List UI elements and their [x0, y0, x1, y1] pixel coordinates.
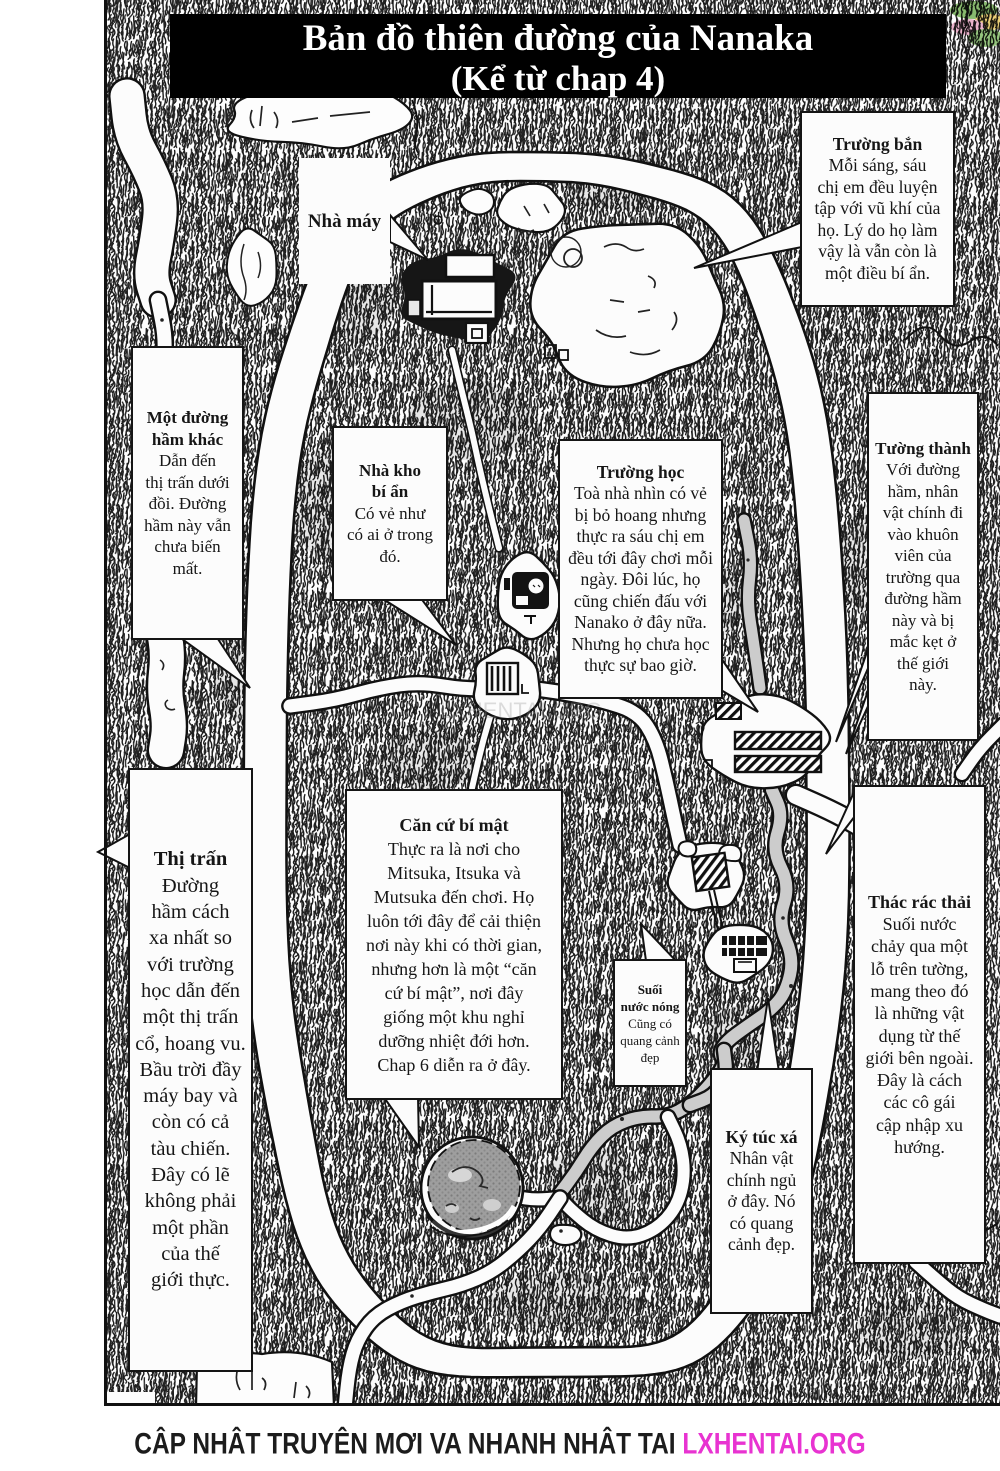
svg-text:LXHENTAI.ORG: LXHENTAI.ORG	[440, 698, 602, 723]
